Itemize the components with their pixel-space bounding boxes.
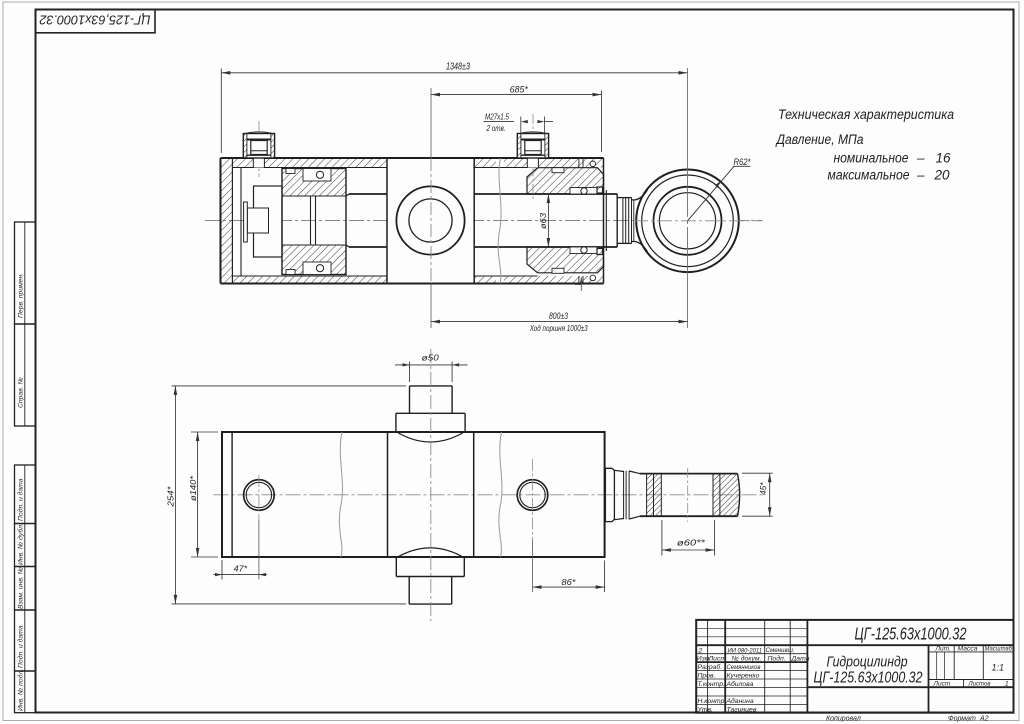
svg-text:Лист: Лист xyxy=(933,681,951,688)
svg-text:1: 1 xyxy=(1005,681,1009,688)
svg-text:ø140*: ø140* xyxy=(188,475,198,501)
svg-text:Т.контр.: Т.контр. xyxy=(698,681,726,688)
svg-text:Копировал: Копировал xyxy=(826,715,861,722)
svg-text:16: 16 xyxy=(936,151,952,166)
svg-text:Инв. № дубл.: Инв. № дубл. xyxy=(17,523,25,565)
svg-text:254*: 254* xyxy=(166,486,176,508)
svg-text:Дата: Дата xyxy=(791,656,810,663)
svg-text:Пров.: Пров. xyxy=(698,672,716,679)
svg-text:Тагинцев: Тагинцев xyxy=(727,706,757,713)
svg-text:Листов: Листов xyxy=(968,681,991,688)
svg-text:Формат: Формат xyxy=(948,715,976,722)
svg-text:Справ. №: Справ. № xyxy=(18,377,25,408)
svg-text:Лит.: Лит. xyxy=(935,646,951,653)
svg-text:2 отв.: 2 отв. xyxy=(486,123,506,133)
svg-text:ЦГ-125.63х1000.32: ЦГ-125.63х1000.32 xyxy=(855,624,967,644)
svg-text:Взам. инв. №: Взам. инв. № xyxy=(18,567,25,609)
svg-text:Семянников: Семянников xyxy=(727,664,761,671)
svg-text:2: 2 xyxy=(698,647,703,654)
svg-text:Масштаб: Масштаб xyxy=(985,645,1013,653)
svg-text:ЦГ-125.63х1000.32: ЦГ-125.63х1000.32 xyxy=(814,670,923,687)
svg-text:ø50: ø50 xyxy=(422,352,439,362)
svg-text:Давление, МПа: Давление, МПа xyxy=(775,132,864,147)
svg-text:Утв.: Утв. xyxy=(697,706,714,713)
svg-text:Гидроцилиндр: Гидроцилиндр xyxy=(827,654,908,671)
svg-text:Абилова: Абилова xyxy=(726,680,754,688)
svg-text:R62*: R62* xyxy=(734,157,751,167)
svg-text:максимальное: максимальное xyxy=(828,168,910,183)
svg-text:Разраб.: Разраб. xyxy=(698,663,723,671)
svg-text:Подп. и дата: Подп. и дата xyxy=(17,625,25,668)
svg-text:1348±3: 1348±3 xyxy=(446,61,470,72)
svg-text:А2: А2 xyxy=(979,715,989,722)
svg-text:Техническая характеристика: Техническая характеристика xyxy=(778,107,954,122)
svg-text:номинальное: номинальное xyxy=(834,151,909,166)
svg-text:Ход поршня 1000±3: Ход поршня 1000±3 xyxy=(529,323,588,333)
svg-text:ИИ 080-2011: ИИ 080-2011 xyxy=(728,647,763,654)
svg-text:47*: 47* xyxy=(234,564,248,574)
svg-text:–: – xyxy=(916,151,925,166)
svg-text:86*: 86* xyxy=(561,577,576,587)
svg-text:800±3: 800±3 xyxy=(549,311,569,322)
svg-text:Н.контр.: Н.контр. xyxy=(698,698,727,705)
svg-text:Сменивш.: Сменивш. xyxy=(766,647,795,654)
svg-text:Кучеренко: Кучеренко xyxy=(727,672,760,679)
svg-text:Перв. примен.: Перв. примен. xyxy=(18,273,25,318)
svg-text:Подп.: Подп. xyxy=(768,655,786,663)
svg-text:Аданина: Аданина xyxy=(726,697,754,705)
svg-text:45*: 45* xyxy=(758,482,768,495)
svg-text:20: 20 xyxy=(934,168,951,183)
svg-text:–: – xyxy=(916,168,925,183)
svg-text:Подп. и дата: Подп. и дата xyxy=(17,478,25,521)
svg-text:Лист: Лист xyxy=(708,656,727,663)
svg-text:№ докум.: № докум. xyxy=(732,655,762,663)
svg-text:М27х1.5: М27х1.5 xyxy=(485,112,509,122)
svg-text:ø60**: ø60** xyxy=(677,537,706,547)
svg-text:Инв. № подл.: Инв. № подл. xyxy=(17,669,25,711)
svg-text:ø63: ø63 xyxy=(538,213,548,229)
svg-text:Масса: Масса xyxy=(958,646,978,653)
svg-text:685*: 685* xyxy=(510,85,528,96)
svg-text:1:1: 1:1 xyxy=(992,663,1005,673)
svg-text:ЦГ-125,63х1000.32: ЦГ-125,63х1000.32 xyxy=(39,13,150,27)
